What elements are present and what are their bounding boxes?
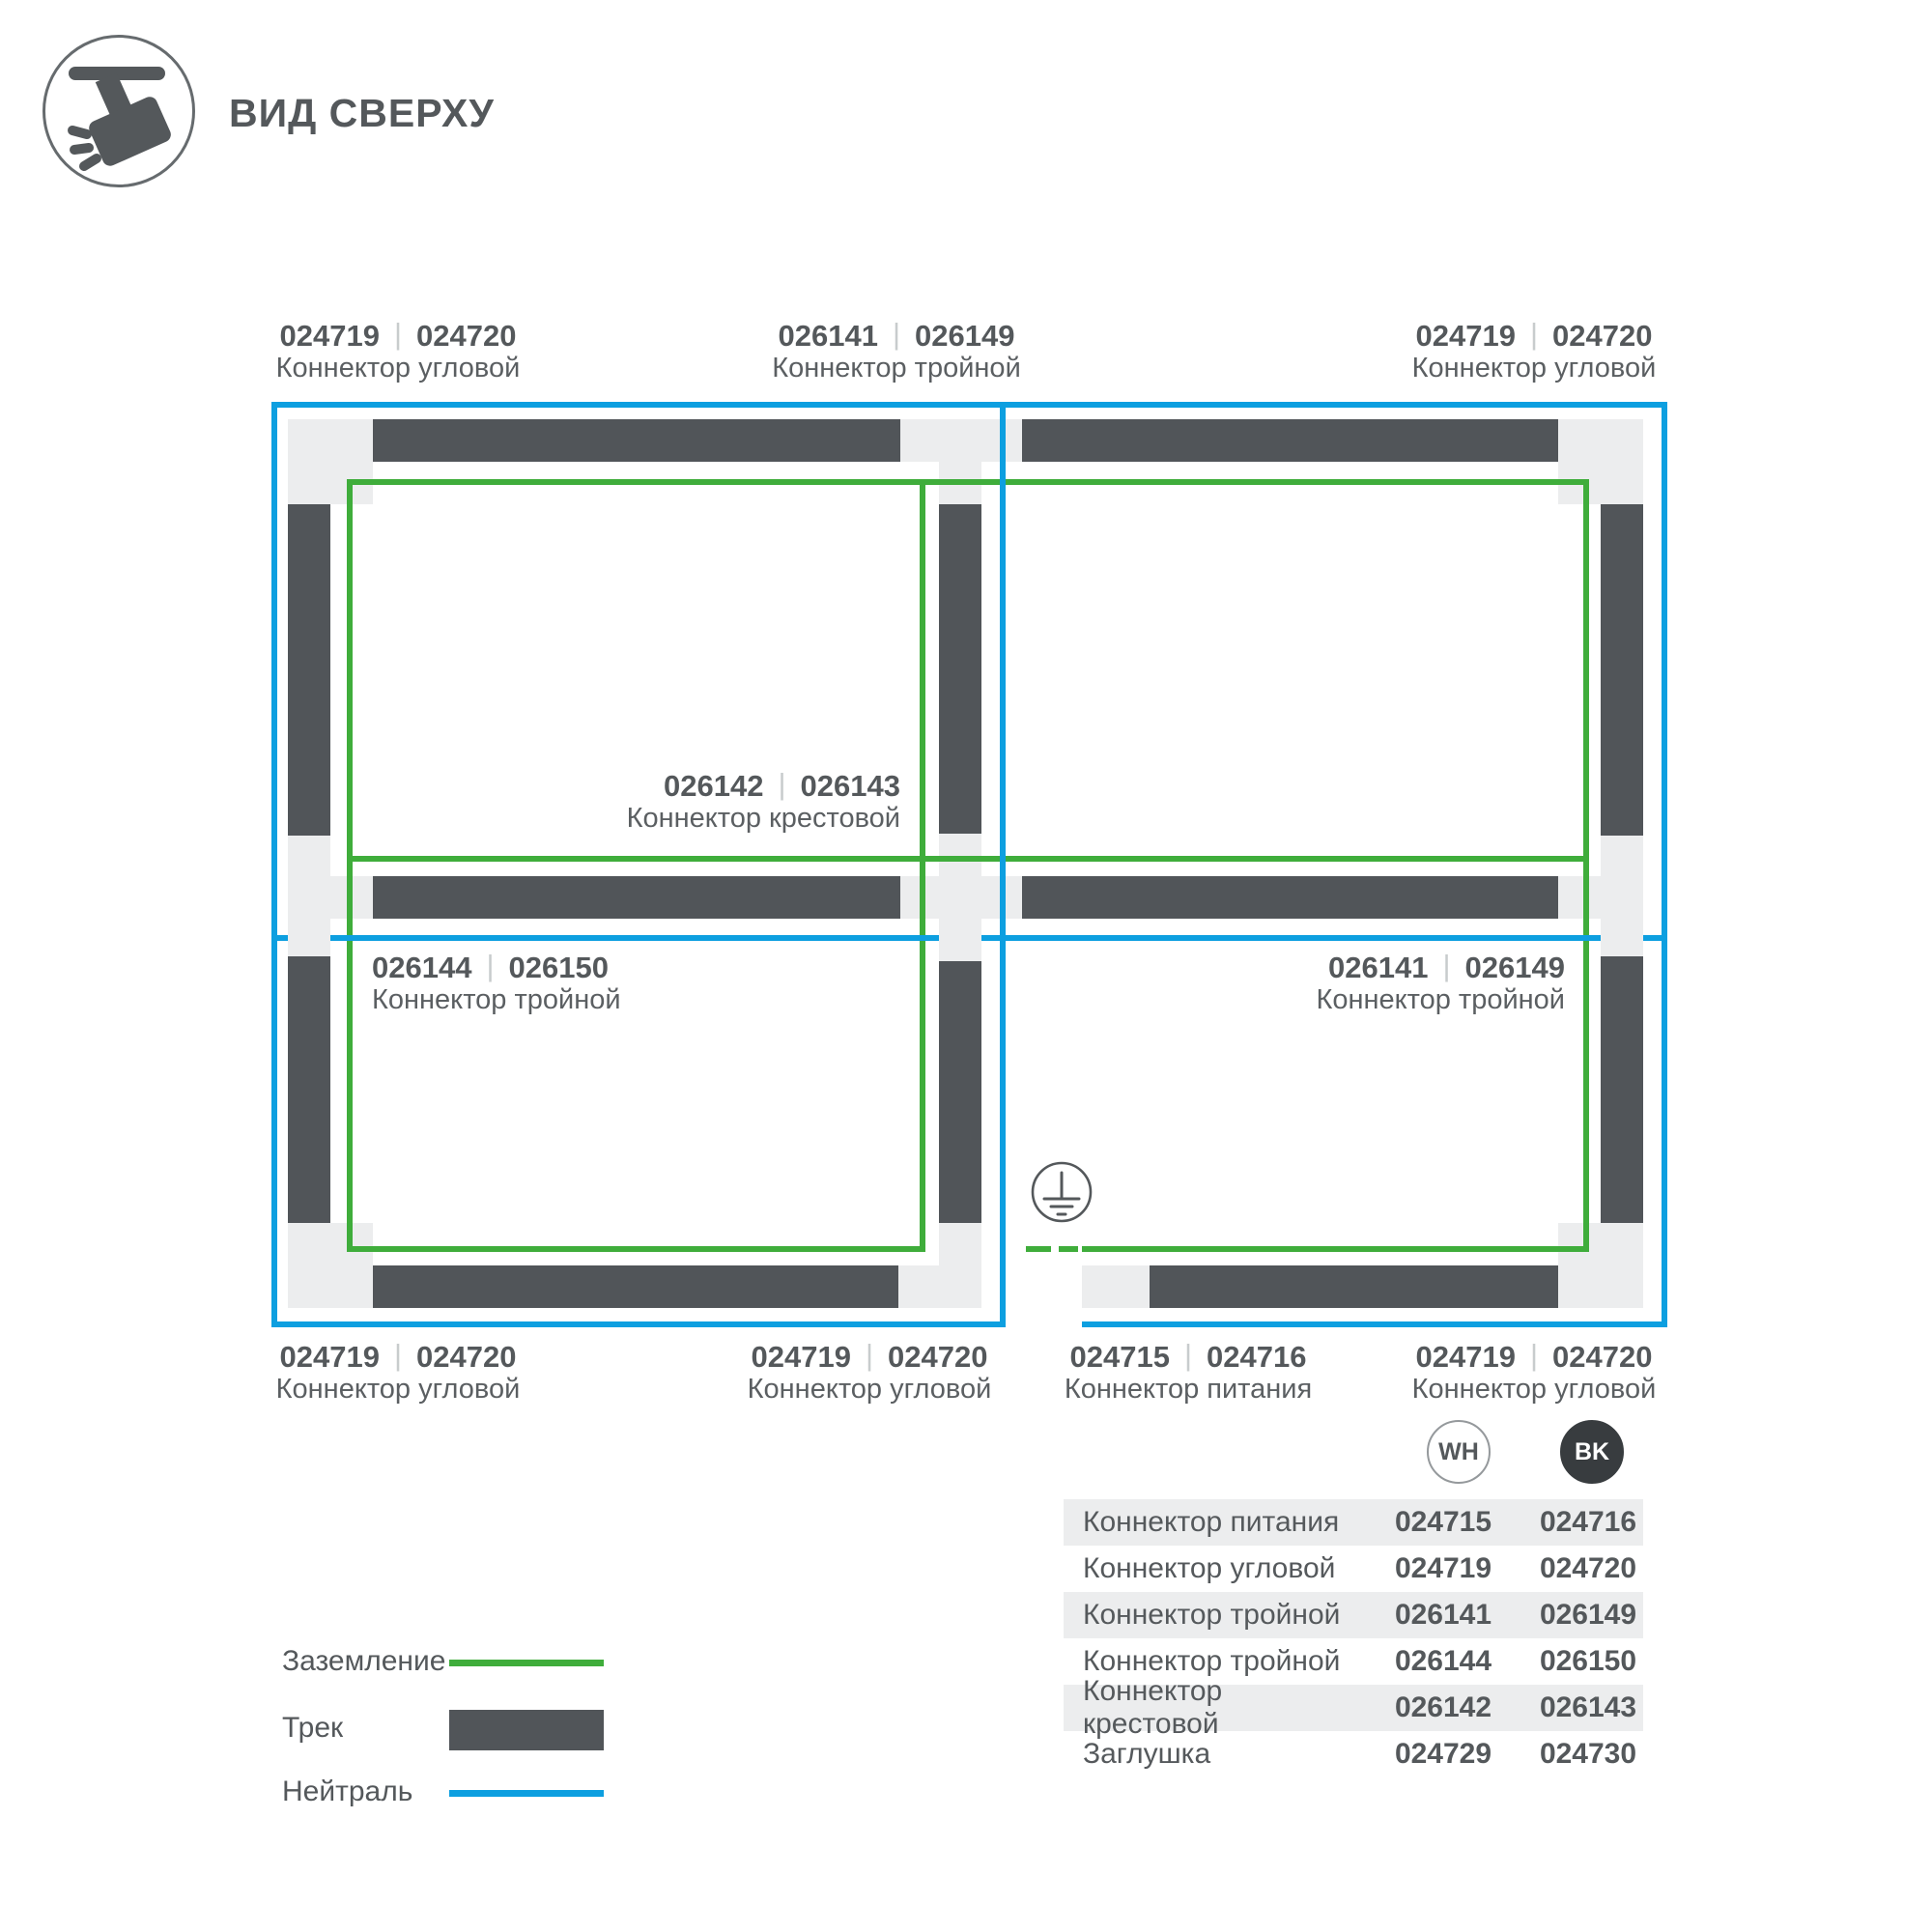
connector-cross-stem-up: [939, 834, 981, 876]
part-code-wh: 024729: [1353, 1738, 1533, 1771]
part-name: Коннектор тройной: [1064, 1645, 1353, 1678]
part-code-bk: 024720: [416, 1340, 516, 1374]
label-connector-middle-left: 026144|026150 Коннектор тройной: [372, 952, 758, 1016]
ground-line-swatch: [449, 1645, 604, 1666]
page-title: ВИД СВЕРХУ: [229, 91, 495, 136]
code-separator: |: [1442, 950, 1450, 982]
ground-line-left: [347, 479, 353, 1252]
label-connector-middle-right: 026141|026149 Коннектор тройной: [1215, 952, 1565, 1016]
part-code-bk: 026150: [1533, 1645, 1643, 1678]
neutral-line-center: [1000, 402, 1006, 1327]
track-light-icon: [43, 35, 195, 187]
connector-corner-bottom-left: [288, 1223, 373, 1308]
part-name: Коннектор тройной: [1064, 1599, 1353, 1632]
connector-name: Коннектор угловой: [224, 1374, 572, 1406]
spotlight-glyph: [45, 38, 186, 179]
legend-label: Трек: [282, 1712, 343, 1744]
earth-ground-icon: [1030, 1160, 1094, 1229]
label-connector-power-feed: 024715|024716 Коннектор питания: [1014, 1341, 1362, 1406]
neutral-line-middle-b: [330, 935, 939, 941]
table-header: WH BK: [1064, 1416, 1643, 1499]
neutral-line-left: [271, 402, 277, 1327]
code-separator: |: [1530, 318, 1538, 351]
connector-tee-right: [1601, 836, 1643, 956]
connector-power-feed: [1082, 1265, 1150, 1308]
code-separator: |: [1530, 1339, 1538, 1372]
connector-cross-stem-down: [939, 919, 981, 961]
legend-item-neutral: Нейтраль: [282, 1776, 688, 1820]
track-bottom-left: [288, 1265, 981, 1308]
connector-name: Коннектор питания: [1014, 1374, 1362, 1406]
label-connector-top-left: 024719|024720 Коннектор угловой: [224, 320, 572, 384]
part-code-wh: 026141: [779, 319, 878, 353]
part-name: Коннектор питания: [1064, 1506, 1353, 1539]
label-connector-top-middle: 026141|026149 Коннектор тройной: [723, 320, 1070, 384]
label-connector-bottom-left: 024719|024720 Коннектор угловой: [224, 1341, 572, 1406]
connector-name: Коннектор крестовой: [551, 803, 900, 835]
page: ВИД СВЕРХУ: [0, 0, 1932, 1932]
ground-line-dash-1: [1026, 1246, 1051, 1252]
connector-corner-bottom-right: [1558, 1223, 1643, 1308]
code-separator: |: [394, 318, 402, 351]
code-separator: |: [866, 1339, 873, 1372]
part-code-wh: 026142: [1353, 1691, 1533, 1724]
connector-tee-right-stem: [1558, 876, 1601, 919]
part-code-wh: 024719: [1353, 1552, 1533, 1585]
part-code-bk: 024720: [1533, 1552, 1643, 1585]
connector-name: Коннектор тройной: [723, 353, 1070, 384]
ground-line-center: [920, 479, 925, 1252]
parts-table: WH BK Коннектор питания024715024716 Конн…: [1064, 1416, 1643, 1777]
label-connector-top-right: 024719|024720 Коннектор угловой: [1360, 320, 1708, 384]
track-bar-swatch: [449, 1712, 604, 1750]
part-code-wh: 024719: [280, 1340, 380, 1374]
connector-corner-top-left: [288, 419, 373, 504]
part-code-wh: 026144: [1353, 1645, 1533, 1678]
part-code-wh: 026144: [372, 951, 471, 984]
ground-line-bottom-right: [1082, 1246, 1589, 1252]
neutral-line-bottom-left: [271, 1321, 1006, 1327]
connector-corner-top-right: [1558, 419, 1643, 504]
code-separator: |: [486, 950, 494, 982]
part-code-bk: 026149: [1465, 951, 1565, 984]
part-code-bk: 026149: [1533, 1599, 1643, 1632]
code-separator: |: [1184, 1339, 1192, 1372]
label-connector-bottom-right: 024719|024720 Коннектор угловой: [1360, 1341, 1708, 1406]
connector-corner-bottom-center-stem: [939, 1223, 981, 1265]
part-code-bk: 024730: [1533, 1738, 1643, 1771]
connector-name: Коннектор угловой: [224, 353, 572, 384]
part-code-bk: 024716: [1533, 1506, 1643, 1539]
ground-line-bottom-left: [347, 1246, 925, 1252]
neutral-line-bottom-right: [1082, 1321, 1667, 1327]
part-code-wh: 024715: [1070, 1340, 1170, 1374]
part-name: Коннектор крестовой: [1064, 1675, 1353, 1741]
part-code-wh: 024719: [1416, 1340, 1516, 1374]
part-code-wh: 024719: [280, 319, 380, 353]
part-code-bk: 026150: [509, 951, 609, 984]
part-code-bk: 026149: [915, 319, 1014, 353]
ground-line-dash-2: [1059, 1246, 1078, 1252]
part-code-bk: 024720: [1552, 319, 1652, 353]
part-code-bk: 024720: [888, 1340, 987, 1374]
neutral-line-right: [1662, 402, 1667, 1327]
legend-label: Заземление: [282, 1645, 445, 1677]
connector-corner-bottom-center: [898, 1265, 981, 1308]
neutral-line-middle-c: [981, 935, 1601, 941]
legend-label: Нейтраль: [282, 1776, 412, 1807]
table-row: Коннектор крестовой026142026143: [1064, 1685, 1643, 1731]
code-separator: |: [893, 318, 900, 351]
ground-line-top: [347, 479, 1589, 485]
part-code-wh: 024719: [752, 1340, 851, 1374]
table-row: Коннектор питания024715024716: [1064, 1499, 1643, 1546]
connector-name: Коннектор угловой: [1360, 1374, 1708, 1406]
connector-name: Коннектор угловой: [696, 1374, 1043, 1406]
part-code-wh: 026141: [1353, 1599, 1533, 1632]
part-code-bk: 024720: [1552, 1340, 1652, 1374]
part-name: Коннектор угловой: [1064, 1552, 1353, 1585]
code-separator: |: [778, 768, 785, 801]
color-badge-black: BK: [1560, 1420, 1624, 1484]
label-connector-cross: 026142|026143 Коннектор крестовой: [551, 770, 900, 835]
code-separator: |: [394, 1339, 402, 1372]
connector-name: Коннектор тройной: [372, 984, 758, 1016]
table-row: Коннектор тройной026141026149: [1064, 1592, 1643, 1638]
part-code-wh: 026141: [1328, 951, 1428, 984]
part-code-wh: 024719: [1416, 319, 1516, 353]
part-code-bk: 026143: [801, 769, 900, 803]
connector-name: Коннектор тройной: [1215, 984, 1565, 1016]
part-code-bk: 024720: [416, 319, 516, 353]
legend-item-ground: Заземление: [282, 1645, 688, 1690]
ground-line-right: [1583, 479, 1589, 1252]
neutral-line-swatch: [449, 1776, 604, 1797]
part-code-bk: 026143: [1533, 1691, 1643, 1724]
label-connector-bottom-center: 024719|024720 Коннектор угловой: [696, 1341, 1043, 1406]
part-code-bk: 024716: [1207, 1340, 1306, 1374]
color-badge-white: WH: [1427, 1420, 1491, 1484]
legend-item-track: Трек: [282, 1712, 688, 1756]
table-row: Коннектор угловой024719024720: [1064, 1546, 1643, 1592]
ground-line-middle: [347, 856, 1589, 862]
part-code-wh: 026142: [664, 769, 763, 803]
neutral-line-top: [271, 402, 1667, 408]
part-code-wh: 024715: [1353, 1506, 1533, 1539]
connector-tee-left: [288, 836, 330, 956]
connector-name: Коннектор угловой: [1360, 353, 1708, 384]
table-row: Заглушка024729024730: [1064, 1731, 1643, 1777]
part-name: Заглушка: [1064, 1738, 1353, 1771]
